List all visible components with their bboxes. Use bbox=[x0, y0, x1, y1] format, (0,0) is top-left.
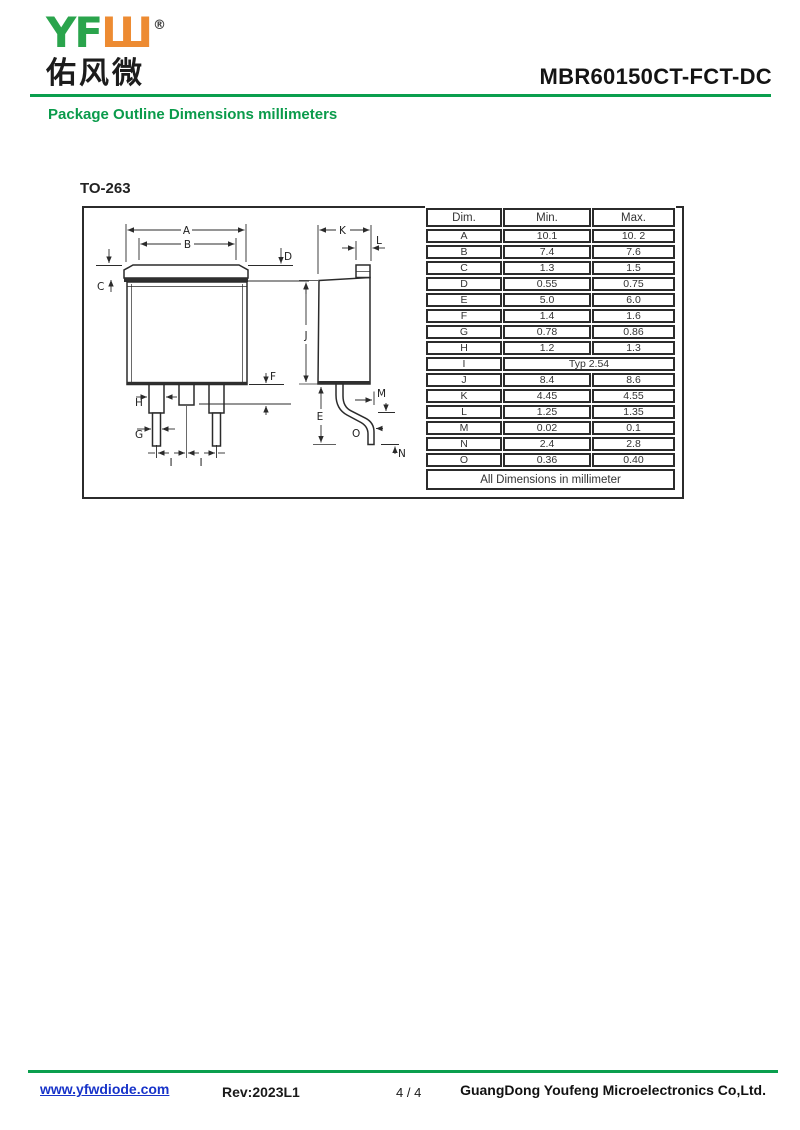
front-body-outline bbox=[127, 282, 247, 385]
table-row: H1.21.3 bbox=[426, 341, 675, 355]
front-tab-outline bbox=[124, 265, 248, 278]
table-row: C1.31.5 bbox=[426, 261, 675, 275]
table-row: F1.41.6 bbox=[426, 309, 675, 323]
dim-label-I-left: I bbox=[169, 457, 172, 469]
table-row: K4.454.55 bbox=[426, 389, 675, 403]
logo-w-glyph: Ш bbox=[101, 8, 151, 57]
dim-label-H: H bbox=[135, 397, 143, 409]
table-row: B7.47.6 bbox=[426, 245, 675, 259]
revision-label: Rev:2023L1 bbox=[222, 1084, 300, 1100]
units-note: All Dimensions in millimeter bbox=[426, 469, 675, 490]
col-header-min: Min. bbox=[503, 208, 591, 227]
table-row: G0.780.86 bbox=[426, 325, 675, 339]
company-name: GuangDong Youfeng Microelectronics Co,Lt… bbox=[460, 1082, 766, 1098]
dim-label-O: O bbox=[352, 428, 360, 440]
website-link[interactable]: www.yfwdiode.com bbox=[40, 1081, 169, 1097]
side-body-outline bbox=[318, 278, 370, 385]
dim-label-D: D bbox=[284, 251, 292, 263]
dimensions-table: Dim. Min. Max. A10.110. 2 B7.47.6 C1.31.… bbox=[425, 206, 676, 492]
dim-label-I-right: I bbox=[199, 457, 202, 469]
table-note-row: All Dimensions in millimeter bbox=[426, 469, 675, 490]
table-header-row: Dim. Min. Max. bbox=[426, 208, 675, 227]
table-row: L1.251.35 bbox=[426, 405, 675, 419]
table-row: O0.360.40 bbox=[426, 453, 675, 467]
registered-trademark-icon: ® bbox=[153, 18, 166, 33]
front-view: A B C D bbox=[96, 224, 309, 469]
package-name: TO-263 bbox=[80, 180, 131, 197]
datasheet-page: YFШ® 佑风微 MBR60150CT-FCT-DC Package Outli… bbox=[0, 0, 800, 1130]
table-row: N2.42.8 bbox=[426, 437, 675, 451]
col-header-dim: Dim. bbox=[426, 208, 502, 227]
table-row: J8.48.6 bbox=[426, 373, 675, 387]
table-row: M0.020.1 bbox=[426, 421, 675, 435]
company-logo: YFШ® 佑风微 bbox=[46, 4, 166, 91]
table-row: D0.550.75 bbox=[426, 277, 675, 291]
package-outline-drawing: A B C D bbox=[84, 208, 424, 497]
header-divider bbox=[30, 94, 771, 97]
page-number: 4 / 4 bbox=[396, 1085, 421, 1100]
side-body-bottom-band bbox=[318, 381, 370, 384]
dim-label-F: F bbox=[270, 371, 276, 383]
dim-label-J: J bbox=[303, 330, 307, 342]
table-row: A10.110. 2 bbox=[426, 229, 675, 243]
footer-divider bbox=[28, 1070, 778, 1073]
dim-label-E: E bbox=[317, 411, 324, 423]
table-row-typ: ITyp 2.54 bbox=[426, 357, 675, 371]
section-title: Package Outline Dimensions millimeters bbox=[48, 106, 337, 123]
side-view: K L J E bbox=[299, 225, 406, 460]
dim-label-C: C bbox=[97, 281, 104, 293]
table-row: E5.06.0 bbox=[426, 293, 675, 307]
logo-wordmark: YFШ® bbox=[46, 4, 166, 55]
col-header-max: Max. bbox=[592, 208, 675, 227]
logo-yf-text: YF bbox=[46, 8, 101, 57]
part-number-title: MBR60150CT-FCT-DC bbox=[540, 64, 772, 90]
dim-label-A: A bbox=[183, 225, 191, 237]
dim-label-N: N bbox=[398, 448, 406, 460]
dim-label-K: K bbox=[339, 225, 347, 237]
dim-label-B: B bbox=[184, 239, 191, 251]
dim-label-M: M bbox=[377, 388, 386, 400]
dim-label-L: L bbox=[376, 235, 382, 247]
dim-label-G: G bbox=[135, 429, 143, 441]
logo-chinese-name: 佑风微 bbox=[46, 57, 166, 91]
